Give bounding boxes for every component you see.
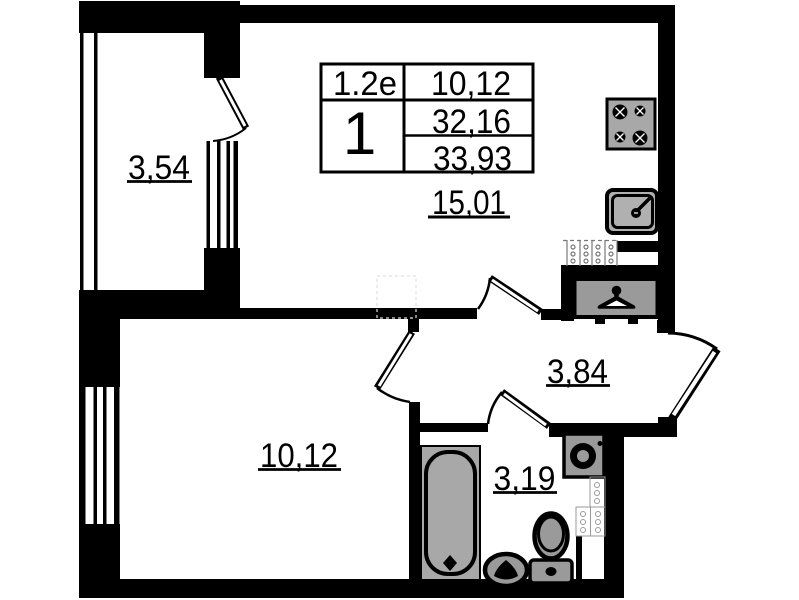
svg-text:33,93: 33,93 [433,140,512,178]
svg-text:10,12: 10,12 [431,65,511,103]
svg-text:32,16: 32,16 [432,103,511,141]
svg-text:1.2e: 1.2e [333,65,397,103]
svg-text:1: 1 [343,100,376,167]
